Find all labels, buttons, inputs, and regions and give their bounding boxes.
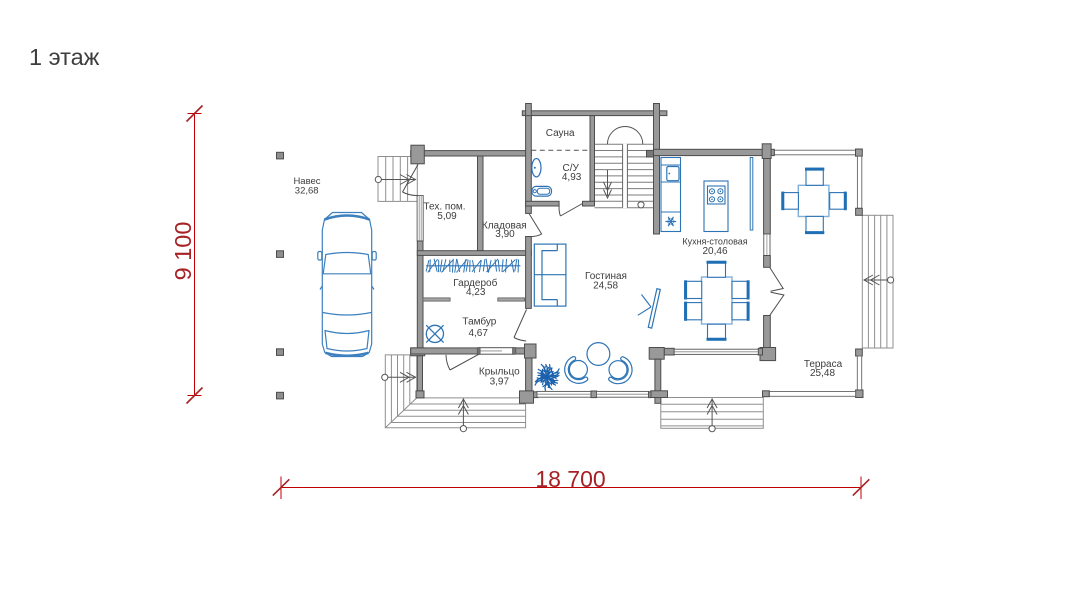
svg-text:5,09: 5,09 <box>437 211 457 222</box>
svg-text:32,68: 32,68 <box>295 185 319 196</box>
svg-text:Тамбур: Тамбур <box>462 315 496 327</box>
svg-text:4,23: 4,23 <box>466 287 486 298</box>
svg-text:1 этаж: 1 этаж <box>29 44 100 70</box>
svg-text:25,48: 25,48 <box>810 368 835 379</box>
svg-text:4,93: 4,93 <box>562 172 582 183</box>
svg-text:24,58: 24,58 <box>593 281 618 292</box>
svg-text:3,97: 3,97 <box>490 376 510 387</box>
svg-text:4,67: 4,67 <box>468 328 488 339</box>
svg-text:20,46: 20,46 <box>702 246 727 257</box>
svg-text:9 100: 9 100 <box>170 222 196 281</box>
svg-text:18 700: 18 700 <box>535 466 605 492</box>
svg-text:Сауна: Сауна <box>546 128 575 139</box>
svg-text:3,90: 3,90 <box>495 229 515 240</box>
